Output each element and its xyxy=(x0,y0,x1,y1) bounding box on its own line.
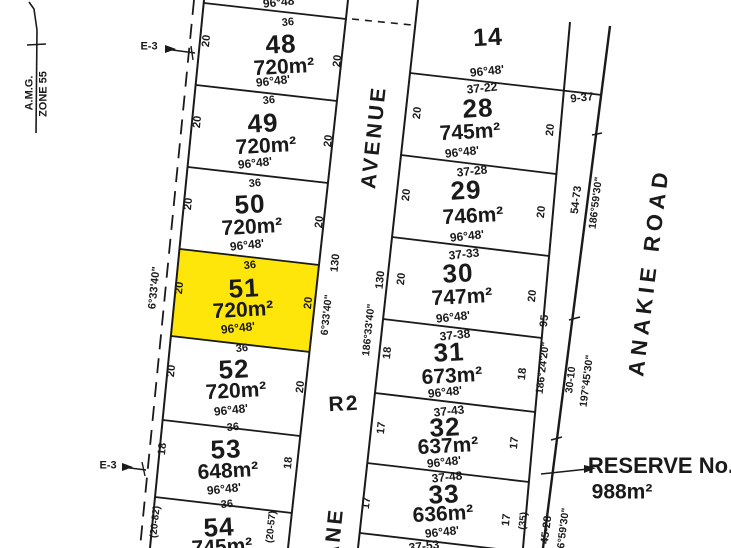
lot-14-number: 14 xyxy=(472,25,503,52)
lot-53-side-left: 18 xyxy=(157,442,169,455)
lot-50-side-left: 20 xyxy=(183,197,195,210)
dane-avenue-zoning: R2 xyxy=(328,393,360,416)
road-tick xyxy=(569,317,580,320)
lot-32-bearing: 96°48' xyxy=(426,454,461,470)
dane-avenue-width-west: 130 xyxy=(330,253,343,272)
lot-49-frontage: 36 xyxy=(262,95,275,107)
e3-top-cross xyxy=(191,46,193,60)
lot-48-frontage: 36 xyxy=(281,17,294,29)
e3-bottom-arrowhead xyxy=(122,463,133,471)
lot-54-area: 745m² xyxy=(191,535,253,548)
dane-avenue-width-east: 130 xyxy=(375,270,388,289)
lot-50-side-right: 20 xyxy=(314,215,326,228)
lot-31-number: 31 xyxy=(433,338,465,366)
lot-52-bearing: 96°48' xyxy=(213,402,248,418)
lot-52-side-left: 20 xyxy=(166,364,178,377)
lot-29-side-right: 20 xyxy=(536,205,548,218)
lot-14-bearing: 96°48' xyxy=(469,63,504,79)
lot-52-side-right: 20 xyxy=(295,380,307,393)
lot-54-frontage: 36 xyxy=(220,499,233,511)
lot-51-area: 720m² xyxy=(212,298,274,322)
lot-31-bearing: 96°48' xyxy=(427,384,462,400)
lot-29-number: 29 xyxy=(450,176,482,204)
lot-49-side-right: 20 xyxy=(323,134,335,147)
lot-51-bearing: 96°48' xyxy=(220,320,255,336)
lot-32-side-left: 17 xyxy=(376,421,388,434)
lot-28-side-right: 20 xyxy=(545,123,557,136)
lot-28-area: 745m² xyxy=(439,120,501,144)
road-tick xyxy=(592,133,602,135)
lot-30-side-left: 20 xyxy=(396,272,408,285)
lot-51-side-left: 20 xyxy=(174,281,186,294)
lot-33-area: 636m² xyxy=(412,502,474,526)
lot-48-side-right: 20 xyxy=(332,54,344,67)
avenue-crossing-dashes xyxy=(352,19,412,25)
lot-31-side-left: 18 xyxy=(382,346,394,359)
lot-33-east-dim: (35) xyxy=(518,512,530,531)
lot-48-side-left: 20 xyxy=(201,34,213,47)
lot-50-bearing: 96°48' xyxy=(229,237,264,253)
lot-49-number: 49 xyxy=(247,109,279,137)
lot-51-side-right: 20 xyxy=(303,296,315,309)
lot-30-number: 30 xyxy=(442,259,474,287)
lot-48-bearing: 96°48' xyxy=(255,73,290,89)
lot-53-bearing: 96°48' xyxy=(206,481,241,497)
lot-29-bearing: 96°48' xyxy=(449,228,484,244)
lot-48-number: 48 xyxy=(265,30,297,58)
lot-53-side-right: 18 xyxy=(283,456,295,469)
e3-top-label: E-3 xyxy=(140,42,157,53)
lot-51-frontage: 36 xyxy=(243,260,256,272)
amg-zone-label: ZONE 55 xyxy=(39,71,50,117)
lot-30-area: 747m² xyxy=(431,285,493,309)
amg-tick xyxy=(27,44,46,45)
e3-bottom-label: E-3 xyxy=(99,461,116,472)
row-line xyxy=(410,73,602,95)
lot-28-number: 28 xyxy=(462,94,494,122)
lot-28-side-left: 20 xyxy=(412,106,424,119)
road-dim-95: 95 xyxy=(539,314,551,327)
lot-28-bearing: 96°48' xyxy=(444,144,479,160)
lot-31-side-right: 18 xyxy=(517,367,529,380)
lot-29-area: 746m² xyxy=(442,204,504,228)
lot-50-area: 720m² xyxy=(221,215,283,239)
reserve-title: RESERVE No. xyxy=(588,455,731,477)
lot-33-side-right: 17 xyxy=(501,513,513,526)
lot-32-side-right: 17 xyxy=(509,436,521,449)
lot-33-side-left: 17 xyxy=(361,496,373,509)
lot-50-number: 50 xyxy=(234,190,266,218)
reserve-arrow-line xyxy=(541,469,588,474)
lot-53-area: 648m² xyxy=(197,459,259,483)
amg-label: A.M.G. xyxy=(25,76,36,111)
right-lots-east-boundary xyxy=(523,22,570,548)
lot-33-bottom-dim: 37-53 xyxy=(408,538,440,548)
lot-53-frontage: 36 xyxy=(226,422,239,434)
lot-30-side-right: 20 xyxy=(527,289,539,302)
lot-49-side-left: 20 xyxy=(192,115,204,128)
cadastral-plan: A.M.G. ZONE 55 E-3 E-3 96°48' 36 48 720m… xyxy=(0,0,731,548)
lot-30-bearing: 96°48' xyxy=(435,309,470,325)
lot-52-area: 720m² xyxy=(205,379,267,403)
e3-top-arrowhead xyxy=(165,45,176,53)
amg-north-line xyxy=(29,2,37,133)
lot-29-side-left: 20 xyxy=(401,188,413,201)
reserve-area: 988m² xyxy=(592,482,653,503)
road-dim-9-37: 9-37 xyxy=(570,92,594,106)
lot-49-bearing: 96°48' xyxy=(237,155,272,171)
